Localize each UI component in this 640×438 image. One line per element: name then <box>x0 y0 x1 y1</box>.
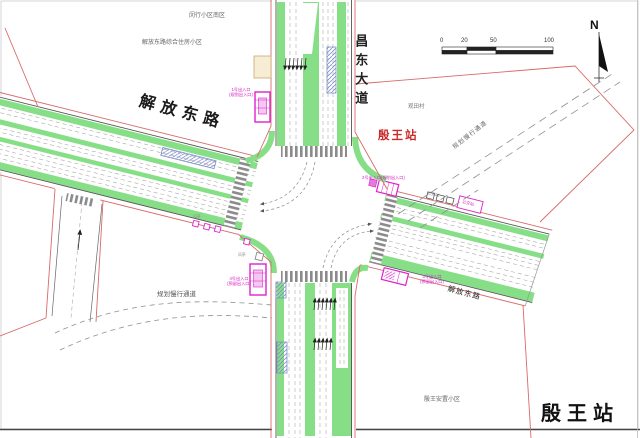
bus-platform-south-b <box>277 342 287 373</box>
station-plan-drawing: 闵行小区南区 解放东路综合住房小区 解放东路 昌东大道 解放东路 殷王站 观田村… <box>0 0 640 438</box>
scale-tick-20: 20 <box>461 38 468 44</box>
entrance-1-label: 1号出入口 (规划出入口) <box>222 87 260 98</box>
vent-label-a: 风亭 <box>193 215 201 220</box>
scale-bar <box>442 47 553 54</box>
entrance-4-label: 4号出入口 (预留出入口) <box>222 276 256 287</box>
scale-tick-100: 100 <box>544 38 554 44</box>
north-label: N <box>590 18 599 32</box>
road-name-changdong-avenue: 昌东大道 <box>352 34 368 110</box>
scale-tick-50: 50 <box>490 38 497 44</box>
bus-platform-south-a <box>276 282 286 298</box>
entrance-1-note: (规划出入口) <box>222 92 260 97</box>
entrance-3-label: 3号出入口 (预留出入口) <box>415 274 449 285</box>
residential-complex-label: 解放东路综合住房小区 <box>142 40 202 48</box>
north-arrow-icon <box>594 32 608 82</box>
station-name-title: 殷王站 <box>541 402 619 427</box>
station-name-red: 殷王站 <box>378 129 419 143</box>
district-label-north: 闵行小区南区 <box>189 13 225 21</box>
entrance-2-note: (规划出入口) <box>381 175 405 180</box>
vent-label-b: 风亭 <box>238 253 246 258</box>
entrance-2-no: 2号出入口 <box>362 175 381 180</box>
building-block <box>254 56 271 78</box>
scale-tick-0: 0 <box>440 38 443 44</box>
resettlement-label: 殷王安置小区 <box>424 397 460 405</box>
changdong-avenue-carriageway <box>272 0 356 438</box>
branch-road <box>46 189 103 322</box>
bus-platform-north <box>327 47 336 93</box>
slow-corridor-label-sw: 规划慢行通道 <box>157 291 196 299</box>
village-label: 观田村 <box>408 104 425 111</box>
crosswalk-south <box>281 271 347 282</box>
turn-guide-lines <box>262 162 372 268</box>
entrance-4-note: (预留出入口) <box>222 281 256 286</box>
crosswalk-north <box>281 146 347 157</box>
entrance-2-label: 2号出入口(规划出入口) <box>362 175 405 180</box>
plan-geometry <box>0 0 640 438</box>
entrance-3-note: (预留出入口) <box>415 279 449 284</box>
